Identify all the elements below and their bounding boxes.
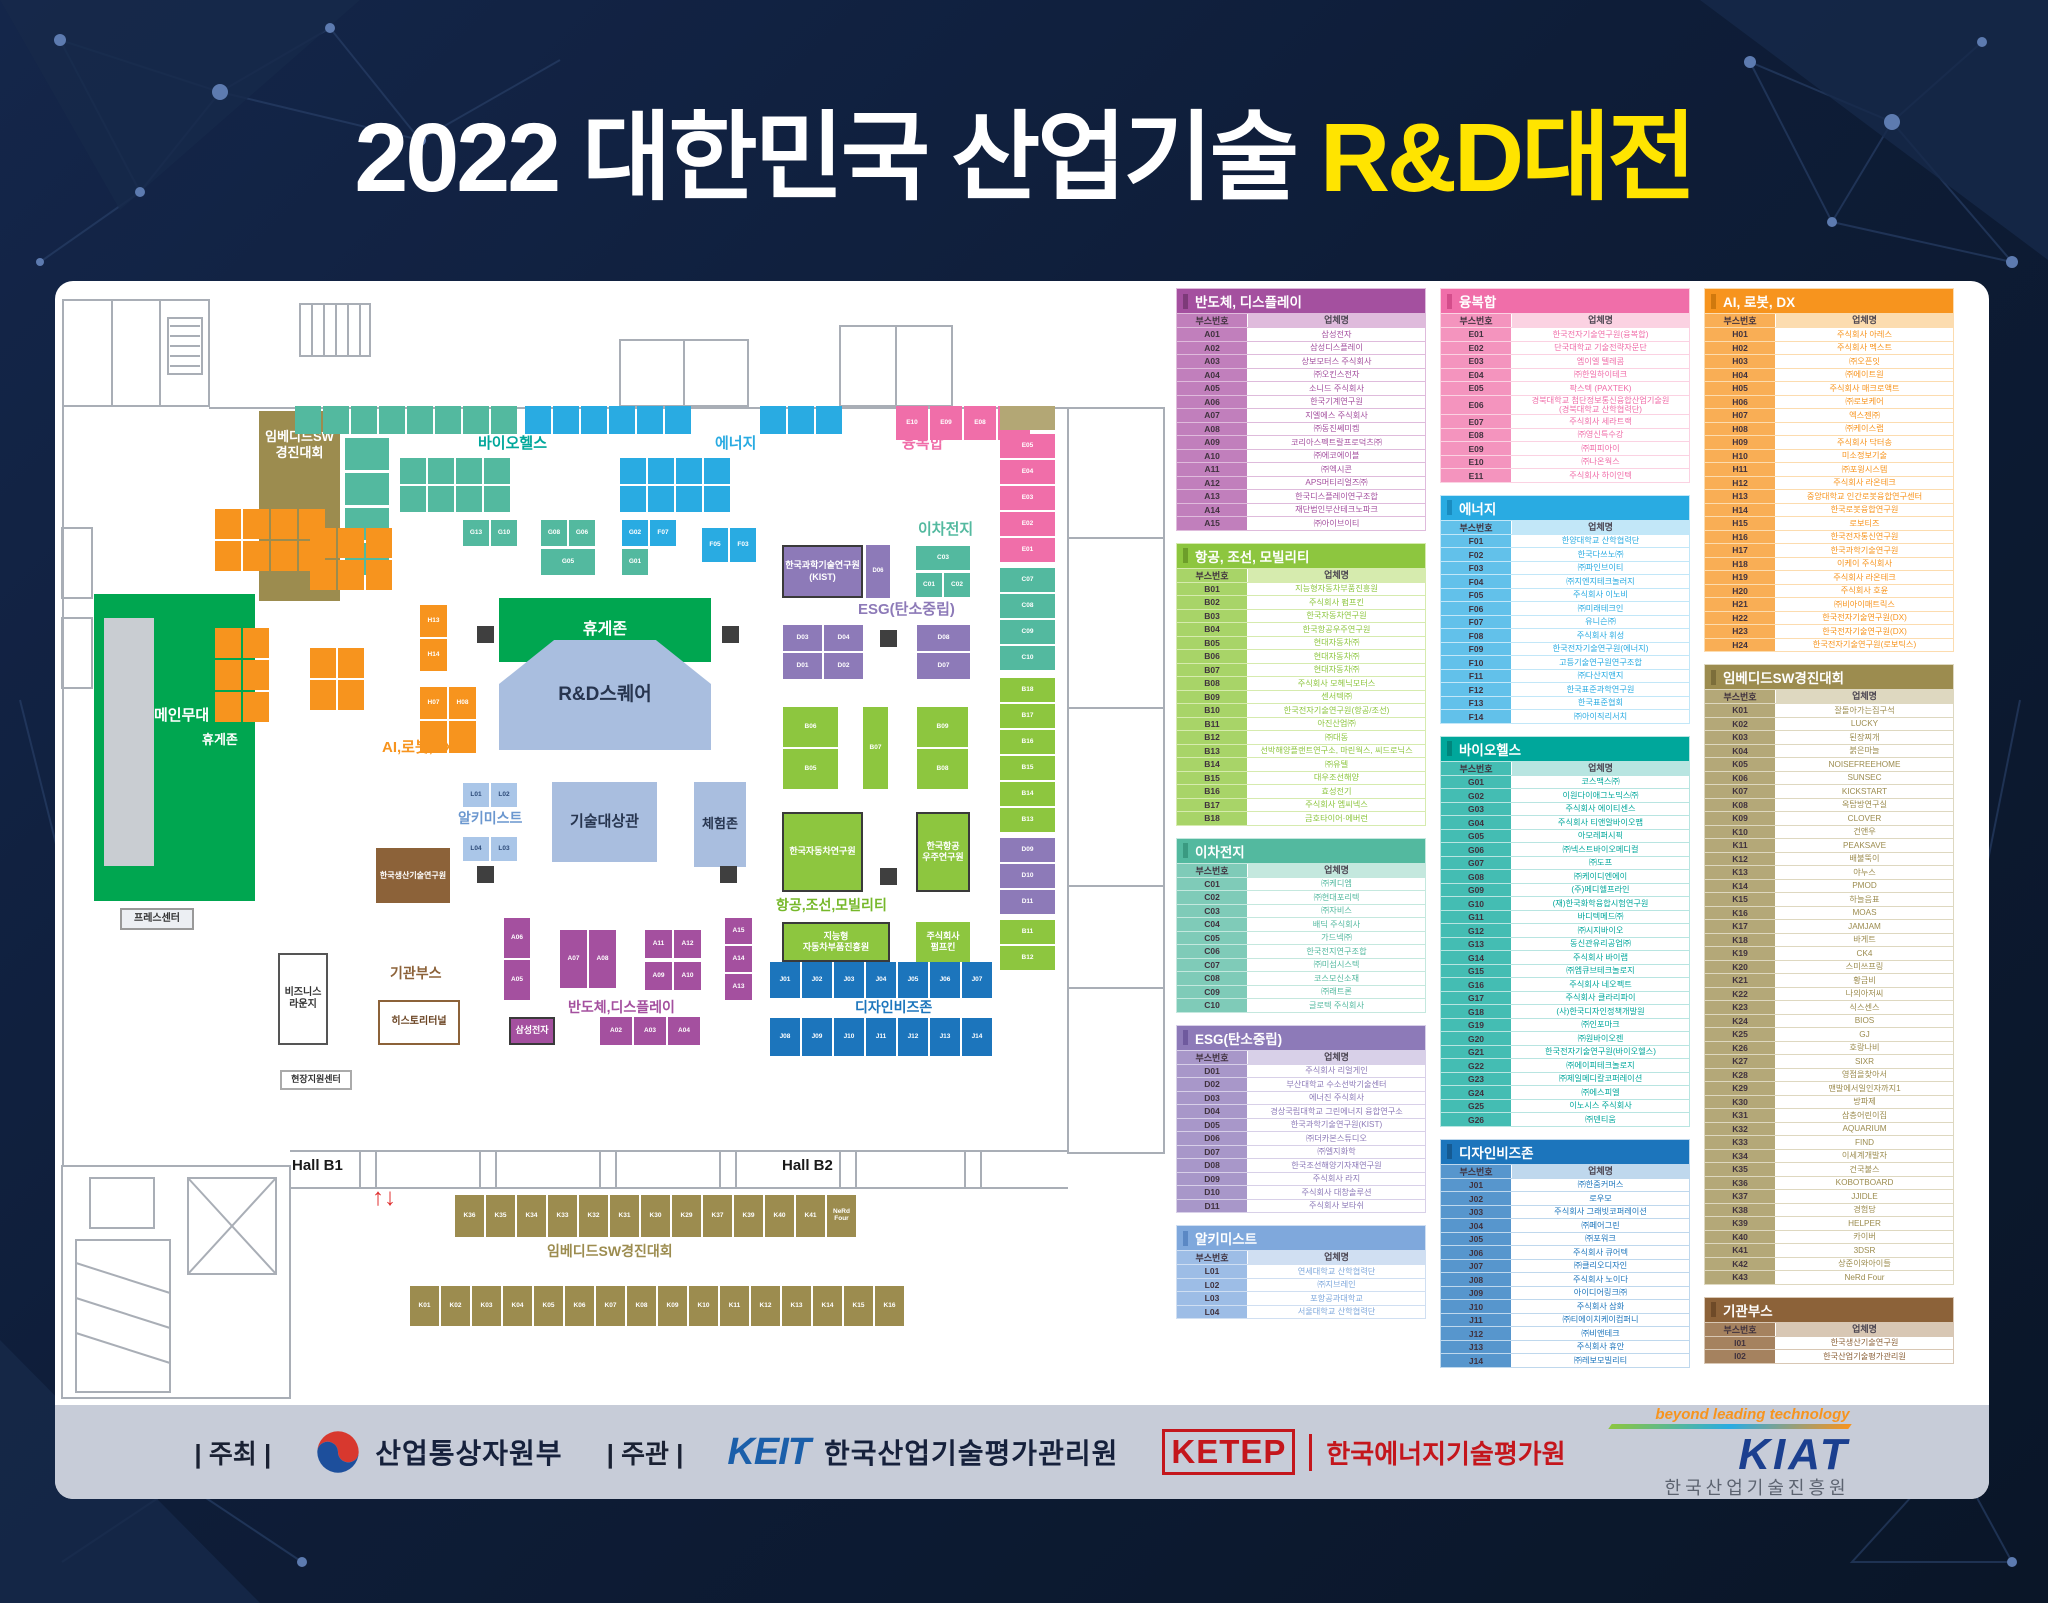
booth-number: J13 — [1441, 1341, 1512, 1354]
company-name: ㈜포워크 — [1512, 1233, 1689, 1246]
table-title-text: 바이오헬스 — [1459, 739, 1521, 759]
booth-row: F11㈜다산지앤지 — [1441, 669, 1689, 683]
booth-number: G22 — [1441, 1059, 1512, 1072]
booth-row: J08주식회사 노이다 — [1441, 1272, 1689, 1286]
company-name: NeRd Four — [1776, 1271, 1953, 1284]
booth-row: C08코스모신소재 — [1177, 971, 1425, 985]
company-name: 코리아스펙트랄프로덕츠㈜ — [1248, 436, 1425, 449]
company-name: 주식회사 라온테크 — [1776, 477, 1953, 490]
booth-number: K21 — [1705, 974, 1776, 987]
floor-booth: B14 — [1000, 782, 1055, 806]
company-name: ㈜피피아이 — [1512, 442, 1689, 455]
floor-booth — [525, 406, 551, 434]
booth-number: A08 — [1177, 423, 1248, 436]
booth-number: E01 — [1441, 328, 1512, 341]
company-name: 한국조선해양기자재연구원 — [1248, 1159, 1425, 1172]
floorplan-zone-box: 지능형 자동차부품진흥원 — [782, 922, 890, 962]
company-name: 유니슨㈜ — [1512, 616, 1689, 629]
floorplan-zone-box: D06 — [866, 545, 890, 598]
table-title-text: 에너지 — [1459, 498, 1496, 518]
booth-row: K04붉은마늘 — [1705, 744, 1953, 758]
floor-booth: K30 — [641, 1195, 670, 1237]
floor-booth — [351, 406, 377, 434]
company-name: 에너진 주식회사 — [1248, 1092, 1425, 1105]
booth-number: G20 — [1441, 1032, 1512, 1045]
company-name: ㈜케디엠 — [1248, 878, 1425, 891]
company-name: LUCKY — [1776, 718, 1953, 731]
floor-booth: J04 — [866, 962, 896, 998]
floor-booth: K09 — [658, 1286, 687, 1326]
table-title: 이차전지 — [1177, 839, 1425, 863]
company-name: 잘돌아가는집구석 — [1776, 704, 1953, 717]
booth-row: K30방파제 — [1705, 1095, 1953, 1109]
company-name: JAMJAM — [1776, 920, 1953, 933]
booth-row: A12APS머티리얼즈㈜ — [1177, 476, 1425, 490]
company-name: ㈜대동 — [1248, 731, 1425, 744]
company-name: 카이버 — [1776, 1231, 1953, 1244]
company-name: 한국전자기술연구원(바이오헬스) — [1512, 1046, 1689, 1059]
floor-booth: L04 — [463, 837, 489, 861]
exhibitor-table-secondary-battery: 이차전지부스번호업체명C01㈜케디엠C02㈜현대포리텍C03㈜자비스C04배딕 … — [1176, 838, 1426, 1013]
booth-row: B05현대자동차㈜ — [1177, 636, 1425, 650]
booth-number: C08 — [1177, 972, 1248, 985]
booth-row: K32AQUARIUM — [1705, 1122, 1953, 1136]
booth-row: K39HELPER — [1705, 1216, 1953, 1230]
booth-row: G15㈜엠큐브테크놀로지 — [1441, 964, 1689, 978]
company-name: (사)한국디자인정책개발원 — [1512, 1005, 1689, 1018]
booth-row: F09한국전자기술연구원(에너지) — [1441, 642, 1689, 656]
floorplan-zone-label: Hall B1 — [292, 1158, 343, 1173]
booth-number: C05 — [1177, 932, 1248, 945]
floorplan-zone-box: 체험존 — [694, 782, 746, 867]
floorplan-zone-label: 이차전지 — [918, 522, 973, 537]
booth-row: K15하늘음표 — [1705, 892, 1953, 906]
booth-row: B01지능형자동차부품진흥원 — [1177, 582, 1425, 596]
company-name: 바게트 — [1776, 934, 1953, 947]
floor-booth: C02 — [944, 573, 970, 597]
booth-number: H11 — [1705, 463, 1776, 476]
company-name: ㈜래트론 — [1248, 986, 1425, 999]
company-name: ㈜오킨스전자 — [1248, 369, 1425, 382]
company-name: 선박해양플랜트연구소, 마린웍스, 씨드로닉스 — [1248, 745, 1425, 758]
table-header-row: 부스번호업체명 — [1705, 313, 1953, 327]
company-name: 주식회사 휴안 — [1512, 1341, 1689, 1354]
booth-row: J05㈜포워크 — [1441, 1232, 1689, 1246]
company-name: ㈜티에이치케이컴퍼니 — [1512, 1314, 1689, 1327]
booth-row: F05주식회사 이노비 — [1441, 588, 1689, 602]
booth-row: D02부산대학교 수소선박기술센터 — [1177, 1077, 1425, 1091]
booth-number: D02 — [1177, 1078, 1248, 1091]
booth-row: H08㈜케이스랩 — [1705, 422, 1953, 436]
booth-number: G23 — [1441, 1073, 1512, 1086]
company-name: 경상국립대학교 그린에너지 융합연구소 — [1248, 1105, 1425, 1118]
booth-number: G24 — [1441, 1086, 1512, 1099]
floorplan-zone-label: 융복합 — [902, 436, 943, 451]
booth-number: H05 — [1705, 382, 1776, 395]
company-name: 아이디어링크㈜ — [1512, 1287, 1689, 1300]
kiat-tagline: beyond leading technology — [1655, 1407, 1849, 1423]
floor-booth: J03 — [834, 962, 864, 998]
booth-row: K19CK4 — [1705, 946, 1953, 960]
booth-row: K37JJIDLE — [1705, 1189, 1953, 1203]
floor-booth: K05 — [534, 1286, 563, 1326]
company-name: 팍스텍 (PAXTEK) — [1512, 382, 1689, 395]
floor-booth — [310, 560, 336, 590]
company-name: 주식회사 세라트랙 — [1512, 415, 1689, 428]
floor-booth: F07 — [650, 520, 676, 546]
company-name: 주식회사 노이다 — [1512, 1273, 1689, 1286]
floor-booth — [310, 528, 336, 558]
booth-number: H17 — [1705, 544, 1776, 557]
booth-row: A08㈜동진쎄미켐 — [1177, 422, 1425, 436]
floor-booth: K31 — [610, 1195, 639, 1237]
venue-panel: 임베디드SW 경진대회휴게존R&D스퀘어기술대상관체험존한국과학기술연구원 (K… — [55, 281, 1989, 1499]
company-name: ㈜페어그린 — [1512, 1219, 1689, 1232]
company-name: 로보티즈 — [1776, 517, 1953, 530]
booth-row: F08주식회사 휘성 — [1441, 628, 1689, 642]
floor-booth: H14 — [420, 639, 447, 671]
booth-number: K07 — [1705, 785, 1776, 798]
booth-row: J09아이디어링크㈜ — [1441, 1286, 1689, 1300]
floor-booth: K01 — [410, 1286, 439, 1326]
booth-row: H21㈜비아이매트릭스 — [1705, 597, 1953, 611]
booth-number: J08 — [1441, 1273, 1512, 1286]
booth-number: L02 — [1177, 1279, 1248, 1292]
booth-row: H02주식회사 멕스트 — [1705, 341, 1953, 355]
booth-row: K31삼층어린이집 — [1705, 1108, 1953, 1122]
table-title: 바이오헬스 — [1441, 737, 1689, 761]
exhibitor-table-alchemist: 알키미스트부스번호업체명L01연세대학교 산학협력단L02㈜지브레인L03포항공… — [1176, 1225, 1426, 1319]
booth-number: G09 — [1441, 884, 1512, 897]
company-name: 주식회사 그래빗코퍼레이션 — [1512, 1206, 1689, 1219]
company-name: ㈜제일메디칼코퍼레이션 — [1512, 1073, 1689, 1086]
table-title-tick-icon — [1447, 294, 1452, 309]
booth-number: A12 — [1177, 477, 1248, 490]
booth-row: B16효성전기 — [1177, 784, 1425, 798]
booth-number-header: 부스번호 — [1177, 569, 1248, 582]
kiat-name: 한국산업기술진흥원 — [1665, 1479, 1850, 1498]
booth-number: E03 — [1441, 355, 1512, 368]
booth-row: K12배불뚝이 — [1705, 852, 1953, 866]
floor-booth: A02 — [600, 1017, 632, 1045]
booth-row: G17주식회사 클라리파이 — [1441, 991, 1689, 1005]
floor-booth — [366, 528, 392, 558]
table-title-tick-icon — [1447, 1144, 1452, 1159]
keit-name: 한국산업기술평가관리원 — [824, 1432, 1118, 1472]
company-name: 호랑나비 — [1776, 1042, 1953, 1055]
booth-number: B09 — [1177, 691, 1248, 704]
floor-booth: J14 — [962, 1018, 992, 1056]
booth-number: K35 — [1705, 1163, 1776, 1176]
company-name: ㈜미섬시스텍 — [1248, 959, 1425, 972]
floor-booth: K39 — [734, 1195, 763, 1237]
floor-booth: C08 — [1000, 594, 1055, 618]
company-name: 식스센스 — [1776, 1001, 1953, 1014]
company-name: 경험당 — [1776, 1204, 1953, 1217]
company-name: 야누스 — [1776, 866, 1953, 879]
exhibitor-table-embedded-sw-contest: 임베디드SW경진대회부스번호업체명K01잘돌아가는집구석K02LUCKYK03된… — [1704, 664, 1954, 1285]
booth-row: H17한국과학기술연구원 — [1705, 543, 1953, 557]
company-name: 바디텍메드㈜ — [1512, 911, 1689, 924]
floor-booth: E08 — [964, 406, 996, 440]
ketep-group: KETEP 한국에너지기술평가원 — [1162, 1429, 1565, 1475]
company-name: ㈜케이디엔에이 — [1512, 870, 1689, 883]
booth-number: K02 — [1705, 718, 1776, 731]
booth-row: G13동신관유리공업㈜ — [1441, 937, 1689, 951]
booth-number: E02 — [1441, 342, 1512, 355]
floor-booth — [491, 406, 517, 434]
company-name: 한국과학기술연구원 — [1776, 544, 1953, 557]
company-name: 옥탑방연구실 — [1776, 799, 1953, 812]
booth-row: B14㈜유텔 — [1177, 757, 1425, 771]
booth-row: K22나의아저씨 — [1705, 987, 1953, 1001]
floor-booth — [637, 406, 663, 434]
booth-row: G10(재)한국화학융합시험연구원 — [1441, 896, 1689, 910]
booth-row: G03주식회사 에이티센스 — [1441, 802, 1689, 816]
booth-row: K26호랑나비 — [1705, 1041, 1953, 1055]
booth-row: J14㈜레보모빌리티 — [1441, 1353, 1689, 1367]
floorplan-zone-label: 알키미스트 — [458, 811, 522, 825]
pillar-icon — [720, 866, 737, 883]
floor-booth: K16 — [875, 1286, 904, 1326]
booth-row: G21한국전자기술연구원(바이오헬스) — [1441, 1045, 1689, 1059]
floor-booth — [379, 406, 405, 434]
floor-booth: E03 — [1000, 486, 1055, 510]
floor-booth: D01 — [783, 653, 822, 679]
booth-number: K34 — [1705, 1150, 1776, 1163]
keit-group: KEIT 한국산업기술평가관리원 — [727, 1431, 1118, 1474]
booth-number: K15 — [1705, 893, 1776, 906]
floor-booth: C09 — [1000, 620, 1055, 644]
company-name: 주식회사 하이인텍 — [1512, 469, 1689, 482]
company-name: KICKSTART — [1776, 785, 1953, 798]
booth-number: K13 — [1705, 866, 1776, 879]
booth-number-header: 부스번호 — [1177, 864, 1248, 877]
booth-row: A13한국디스플레이연구조합 — [1177, 489, 1425, 503]
floor-booth — [338, 648, 364, 678]
company-name: 한국자동차연구원 — [1248, 610, 1425, 623]
booth-number: B04 — [1177, 623, 1248, 636]
booth-number: B03 — [1177, 610, 1248, 623]
booth-number: B15 — [1177, 772, 1248, 785]
booth-number: F11 — [1441, 670, 1512, 683]
floor-booth: K15 — [844, 1286, 873, 1326]
floor-booth: J12 — [898, 1018, 928, 1056]
booth-row: K14PMOD — [1705, 879, 1953, 893]
floorplan-zone-label: 바이오헬스 — [478, 436, 547, 451]
company-name: 스미쓰프링 — [1776, 961, 1953, 974]
page-title-highlight: R&D대전 — [1320, 103, 1694, 212]
company-name: 상보모터스 주식회사 — [1248, 355, 1425, 368]
booth-number: E07 — [1441, 415, 1512, 428]
booth-number: D08 — [1177, 1159, 1248, 1172]
booth-row: H23한국전자기술연구원(DX) — [1705, 624, 1953, 638]
kiat-group: beyond leading technology KIAT 한국산업기술진흥원 — [1610, 1407, 1850, 1498]
floor-booth — [310, 680, 336, 710]
booth-number: J03 — [1441, 1206, 1512, 1219]
company-name: 주식회사 대창솔루션 — [1248, 1186, 1425, 1199]
company-name: 한국전지연구조합 — [1248, 945, 1425, 958]
booth-number: K08 — [1705, 799, 1776, 812]
table-title-tick-icon — [1183, 1231, 1188, 1246]
floor-booth: K36 — [455, 1195, 484, 1237]
booth-number: L01 — [1177, 1265, 1248, 1278]
company-name: ㈜레보모빌리티 — [1512, 1354, 1689, 1367]
floor-booth: K08 — [627, 1286, 656, 1326]
floor-booth: B12 — [1000, 946, 1055, 970]
booth-number: H04 — [1705, 369, 1776, 382]
booth-number: K39 — [1705, 1217, 1776, 1230]
booth-row: G18(사)한국디자인정책개발원 — [1441, 1004, 1689, 1018]
floor-booth — [243, 509, 269, 539]
booth-number: K23 — [1705, 1001, 1776, 1014]
booth-row: I02한국산업기술평가관리원 — [1705, 1349, 1953, 1363]
company-name: 주식회사 휘성 — [1512, 629, 1689, 642]
floor-booth — [407, 406, 433, 434]
booth-number: B16 — [1177, 785, 1248, 798]
floorplan-zone-label: 항공,조선,모빌리티 — [776, 898, 887, 912]
company-name: JJIDLE — [1776, 1190, 1953, 1203]
floor-booth: D03 — [783, 625, 822, 651]
booth-number: E11 — [1441, 469, 1512, 482]
booth-row: B06현대자동차㈜ — [1177, 649, 1425, 663]
floor-booth: C03 — [916, 546, 970, 570]
booth-number: K01 — [1705, 704, 1776, 717]
table-title-text: 디자인비즈존 — [1459, 1142, 1534, 1162]
exhibitor-column-1: 반도체, 디스플레이부스번호업체명A01삼성전자A02삼성디스플레이A03상보모… — [1176, 288, 1426, 1368]
booth-number: H03 — [1705, 355, 1776, 368]
booth-row: K05NOISEFREEHOME — [1705, 757, 1953, 771]
floorplan-zone-box: 히스토리터널 — [378, 1000, 460, 1045]
floor-booth: A04 — [668, 1017, 700, 1045]
floor-booth: J06 — [930, 962, 960, 998]
booth-number: H02 — [1705, 342, 1776, 355]
company-name: 포항공과대학교 — [1248, 1292, 1425, 1305]
floor-booth: F05 — [702, 528, 728, 562]
floor-booth — [609, 406, 635, 434]
booth-number: D01 — [1177, 1065, 1248, 1078]
floor-booth: B16 — [1000, 730, 1055, 754]
booth-row: D07㈜엘지화학 — [1177, 1145, 1425, 1159]
booth-number: G04 — [1441, 816, 1512, 829]
floor-booth: J05 — [898, 962, 928, 998]
booth-row: B07현대자동차㈜ — [1177, 663, 1425, 677]
booth-number: J11 — [1441, 1314, 1512, 1327]
table-title: 임베디드SW경진대회 — [1705, 665, 1953, 689]
booth-number: A01 — [1177, 328, 1248, 341]
company-name-header: 업체명 — [1512, 1165, 1689, 1178]
booth-number: J06 — [1441, 1246, 1512, 1259]
booth-number: F10 — [1441, 656, 1512, 669]
booth-row: J06주식회사 큐어텍 — [1441, 1245, 1689, 1259]
company-name: 한국다쓰노㈜ — [1512, 548, 1689, 561]
floor-booth: D07 — [917, 653, 970, 679]
company-name: ㈜현대포리텍 — [1248, 891, 1425, 904]
company-name: PEAKSAVE — [1776, 839, 1953, 852]
booth-number: J01 — [1441, 1179, 1512, 1192]
booth-number: B02 — [1177, 596, 1248, 609]
table-title: 반도체, 디스플레이 — [1177, 289, 1425, 313]
floor-booth — [400, 458, 426, 484]
company-name: AQUARIUM — [1776, 1123, 1953, 1136]
booth-number: G07 — [1441, 857, 1512, 870]
floor-booth: J11 — [866, 1018, 896, 1056]
booth-number-header: 부스번호 — [1441, 521, 1512, 534]
exhibitor-column-3: AI, 로봇, DX부스번호업체명H01주식회사 아레스H02주식회사 멕스트H… — [1704, 288, 1954, 1368]
table-title-text: ESG(탄소중립) — [1195, 1028, 1282, 1048]
booth-row: H14한국로봇융합연구원 — [1705, 503, 1953, 517]
floor-booth — [338, 680, 364, 710]
company-name: 맨발에서일인자까지1 — [1776, 1082, 1953, 1095]
company-name: ㈜한줌커머스 — [1512, 1179, 1689, 1192]
booth-number-header: 부스번호 — [1177, 314, 1248, 327]
company-name: 한국로봇융합연구원 — [1776, 504, 1953, 517]
company-name: ㈜넥스트바이오메디컬 — [1512, 843, 1689, 856]
floor-booth — [665, 406, 691, 434]
table-header-row: 부스번호업체명 — [1441, 520, 1689, 534]
floor-booth: K02 — [441, 1286, 470, 1326]
booth-row: G09(주)메디헬프라인 — [1441, 883, 1689, 897]
floor-booth: K37 — [703, 1195, 732, 1237]
booth-row: K13야누스 — [1705, 865, 1953, 879]
table-title-text: AI, 로봇, DX — [1723, 291, 1795, 311]
booth-number: I02 — [1705, 1350, 1776, 1363]
booth-row: K34이세계개발자 — [1705, 1149, 1953, 1163]
company-name: ㈜한일하이테크 — [1512, 369, 1689, 382]
booth-number: L03 — [1177, 1292, 1248, 1305]
company-name: ㈜유텔 — [1248, 758, 1425, 771]
company-name: 단국대학교 기술전략자문단 — [1512, 342, 1689, 355]
floor-booth: K32 — [579, 1195, 608, 1237]
company-name: 주식회사 큐어텍 — [1512, 1246, 1689, 1259]
table-title-tick-icon — [1447, 741, 1452, 756]
company-name: CLOVER — [1776, 812, 1953, 825]
table-title: 에너지 — [1441, 496, 1689, 520]
company-name: 현대자동차㈜ — [1248, 664, 1425, 677]
floor-booth: J08 — [770, 1018, 800, 1056]
booth-row: F06㈜미래테크인 — [1441, 601, 1689, 615]
company-name: 현대자동차㈜ — [1248, 650, 1425, 663]
company-name: 이노시스 주식회사 — [1512, 1100, 1689, 1113]
booth-number: A10 — [1177, 450, 1248, 463]
floor-booth: K29 — [672, 1195, 701, 1237]
booth-row: B17주식회사 엠씨넥스 — [1177, 798, 1425, 812]
booth-row: F12한국표준과학연구원 — [1441, 682, 1689, 696]
exhibitor-table-semiconductor-display: 반도체, 디스플레이부스번호업체명A01삼성전자A02삼성디스플레이A03상보모… — [1176, 288, 1426, 531]
company-name: ㈜로보케어 — [1776, 396, 1953, 409]
company-name: 한국표준협회 — [1512, 697, 1689, 710]
booth-row: G01코스맥스㈜ — [1441, 775, 1689, 789]
booth-row: K40카이버 — [1705, 1230, 1953, 1244]
booth-row: H24한국전자기술연구원(로보틱스) — [1705, 638, 1953, 652]
booth-row: G08㈜케이디엔에이 — [1441, 869, 1689, 883]
booth-row: K07KICKSTART — [1705, 784, 1953, 798]
booth-row: K24BIOS — [1705, 1014, 1953, 1028]
booth-number: H09 — [1705, 436, 1776, 449]
booth-number: G19 — [1441, 1019, 1512, 1032]
booth-number: A06 — [1177, 396, 1248, 409]
floor-booth: D02 — [824, 653, 863, 679]
booth-row: B12㈜대동 — [1177, 730, 1425, 744]
booth-number: K04 — [1705, 745, 1776, 758]
floor-booth: J02 — [802, 962, 832, 998]
booth-number: H19 — [1705, 571, 1776, 584]
booth-row: A02삼성디스플레이 — [1177, 341, 1425, 355]
booth-row: D09주식회사 라지 — [1177, 1172, 1425, 1186]
company-name: ㈜덴티움 — [1512, 1113, 1689, 1126]
booth-number: K42 — [1705, 1258, 1776, 1271]
floor-booth: H07 — [420, 687, 447, 719]
